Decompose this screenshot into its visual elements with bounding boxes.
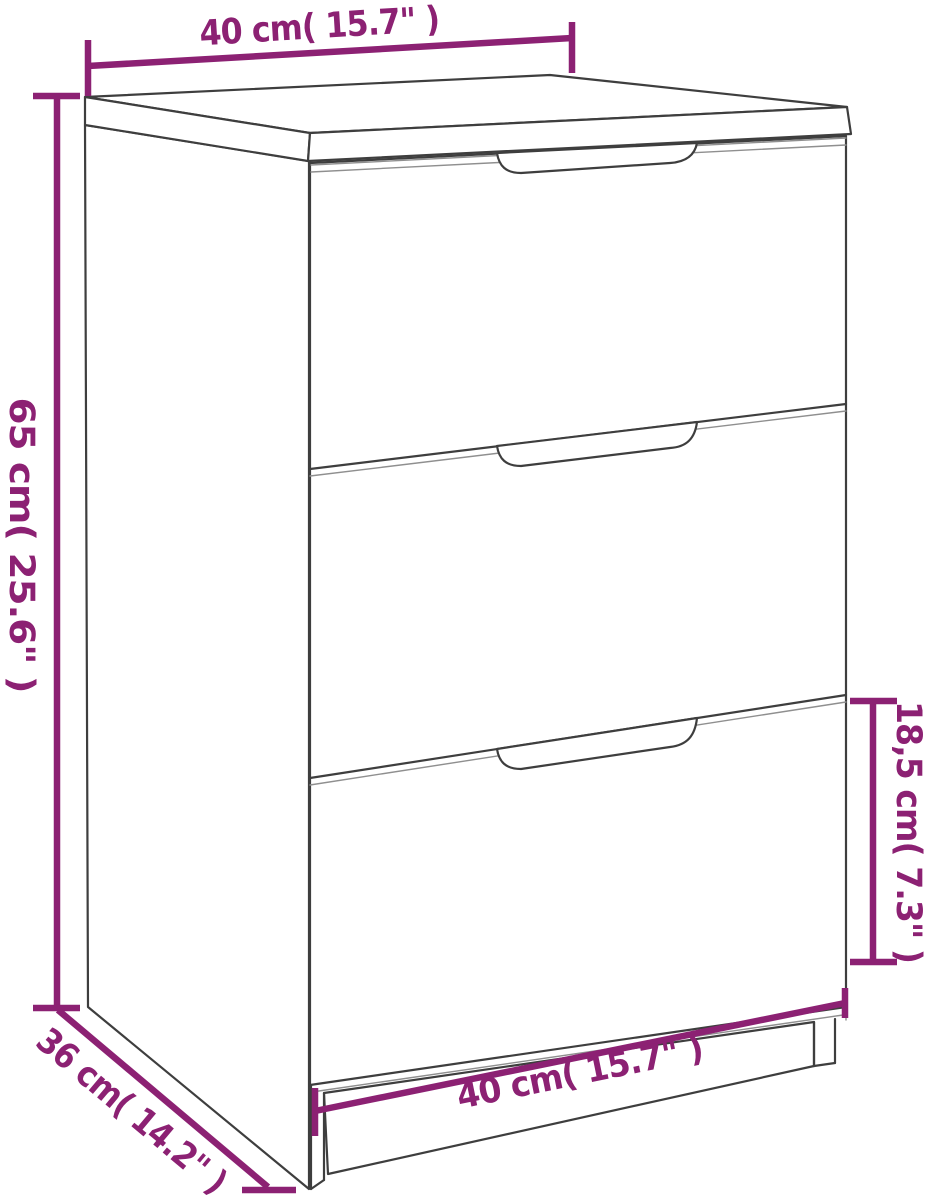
cabinet-left-side-panel <box>85 125 309 1189</box>
dimension-drawer-height: 18,5 cm( 7.3" ) <box>850 701 928 963</box>
front-left-leg-bottom <box>311 1180 324 1189</box>
product-dimension-diagram: 40 cm( 15.7" ) 65 cm( 25.6" ) 36 cm( 14.… <box>0 0 933 1200</box>
diagram-canvas: 40 cm( 15.7" ) 65 cm( 25.6" ) 36 cm( 14.… <box>0 0 933 1200</box>
dimension-height-label: 65 cm( 25.6" ) <box>1 398 41 693</box>
front-right-leg-bottom <box>814 1063 835 1066</box>
dimension-height: 65 cm( 25.6" ) <box>1 96 80 1008</box>
dimension-drawer-height-label: 18,5 cm( 7.3" ) <box>888 701 928 963</box>
cabinet-front-panel <box>310 136 846 1085</box>
